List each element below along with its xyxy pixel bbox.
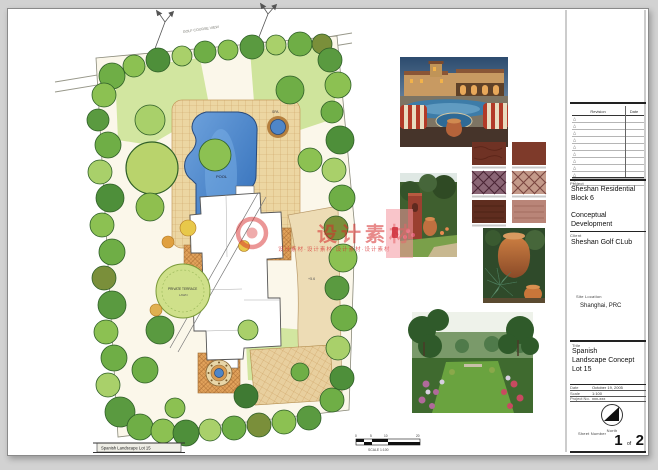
revision-triangle-icon: △	[573, 172, 576, 178]
date-label: Date	[570, 385, 592, 390]
sheet-of: of	[627, 441, 631, 447]
sheet-current: 1	[614, 432, 622, 449]
revision-row: △	[572, 137, 644, 144]
svg-text:0: 0	[355, 434, 357, 438]
project-no-value: xxx-xxx	[592, 396, 646, 401]
revision-triangle-icon: △	[573, 137, 576, 143]
revision-row: △	[572, 151, 644, 158]
tile-samples	[472, 142, 546, 227]
client-label: Client	[570, 233, 581, 238]
revision-row: △	[572, 165, 644, 172]
golf-course-view-label: GOLF COURSE VIEW	[183, 25, 220, 34]
revision-table-header: Revision Date	[572, 106, 644, 116]
scale-bar: 0 5 10 20 SCALE 1:100	[355, 434, 420, 452]
watermark-pink-box	[386, 209, 413, 258]
watermark-subtext: 设计素材·设计素材·设计素材·设计素材	[278, 245, 391, 253]
spa-label: SPA	[272, 110, 279, 114]
phase-line1: Conceptual	[571, 212, 606, 220]
sheet-label-strip: Spanish Landscape Lot 15	[93, 443, 185, 453]
pool-label: POOL	[216, 174, 228, 179]
scale-caption: SCALE 1:100	[368, 448, 389, 452]
svg-text:Spanish Landscape Lot 15: Spanish Landscape Lot 15	[101, 446, 151, 451]
drawing-sheet-page: GOLF COURSE VIEW CART PATH	[0, 0, 658, 470]
date-value: October 19, 2005	[592, 385, 646, 390]
phase-line2: Development	[571, 221, 612, 229]
revision-column-divider	[625, 106, 626, 177]
striped-cushion-right	[483, 103, 508, 129]
revision-triangle-icon: △	[573, 165, 576, 171]
site-location-value: Shanghai, PRC	[580, 303, 621, 309]
revision-triangle-icon: △	[573, 130, 576, 136]
reference-photo-urn	[483, 228, 545, 303]
striped-cushion-left	[400, 105, 427, 129]
site-location-label: Site Location	[576, 294, 602, 299]
revision-rows: △△△△△△△△△△	[572, 116, 644, 186]
date-header: Date	[624, 106, 644, 115]
revision-row: △	[572, 130, 644, 137]
revision-row: △	[572, 123, 644, 130]
lawn-label: LAWN	[179, 293, 188, 297]
revision-triangle-icon: △	[573, 144, 576, 150]
spot-elevation: +5.6	[308, 277, 315, 281]
sheet-total: 2	[636, 432, 644, 449]
north-arrow-icon	[599, 402, 625, 428]
scale-value: 1:100	[592, 391, 646, 396]
private-terrace-label: PRIVATE TERRACE	[168, 287, 197, 291]
revision-header: Revision	[572, 106, 624, 115]
revision-row: △	[572, 158, 644, 165]
revision-triangle-icon: △	[573, 158, 576, 164]
reference-photo-villa	[400, 57, 508, 147]
drawing-title-line2: Landscape Concept	[572, 357, 634, 365]
scale-label: Scale	[570, 391, 592, 396]
drawing-title-line3: Lot 15	[572, 366, 591, 374]
sheet-number: 1 of 2	[592, 432, 644, 450]
revision-triangle-icon: △	[573, 123, 576, 129]
revision-row: △	[572, 172, 644, 179]
client-name: Sheshan Golf CLub	[571, 239, 632, 247]
project-no-label: Project No.	[570, 396, 592, 401]
fountain	[206, 360, 232, 386]
svg-text:10: 10	[384, 434, 388, 438]
reference-photo-garden	[408, 309, 539, 413]
project-name-line1: Sheshan Residential	[571, 186, 635, 194]
watermark-seal-icon	[392, 227, 398, 238]
revision-row: △	[572, 144, 644, 151]
revision-triangle-icon: △	[573, 151, 576, 157]
revision-triangle-icon: △	[573, 116, 576, 122]
revision-row: △	[572, 116, 644, 123]
svg-text:5: 5	[370, 434, 372, 438]
svg-text:20: 20	[416, 434, 420, 438]
private-terrace: PRIVATE TERRACE LAWN	[156, 264, 210, 318]
project-name-line2: Block 6	[571, 195, 594, 203]
revision-table: Revision Date △△△△△△△△△△	[572, 106, 644, 178]
drawing-title-line1: Spanish	[572, 348, 597, 356]
